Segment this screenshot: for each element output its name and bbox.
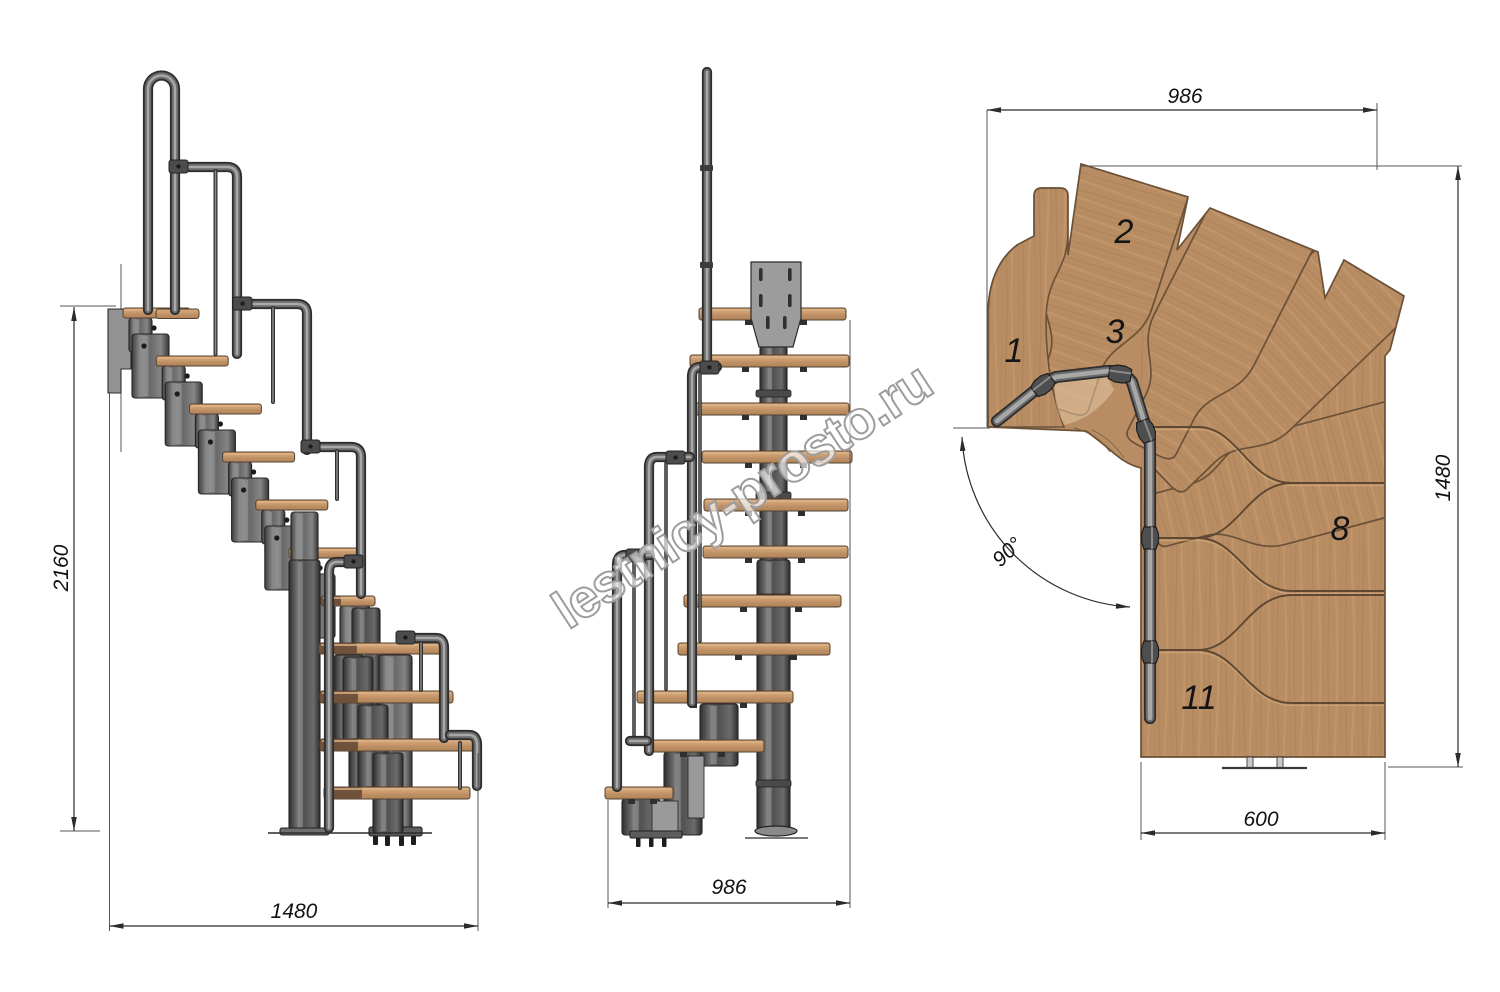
svg-text:1: 1: [1005, 332, 1024, 370]
svg-text:90°: 90°: [988, 533, 1027, 571]
svg-text:1480: 1480: [271, 900, 318, 923]
svg-text:1480: 1480: [1432, 454, 1455, 501]
svg-text:2160: 2160: [50, 544, 73, 592]
svg-text:986: 986: [1167, 85, 1202, 108]
svg-text:8: 8: [1331, 510, 1350, 548]
svg-text:986: 986: [711, 876, 746, 899]
svg-text:3: 3: [1106, 313, 1125, 351]
svg-text:600: 600: [1243, 808, 1278, 831]
svg-text:2: 2: [1114, 213, 1134, 251]
svg-text:11: 11: [1181, 679, 1216, 717]
